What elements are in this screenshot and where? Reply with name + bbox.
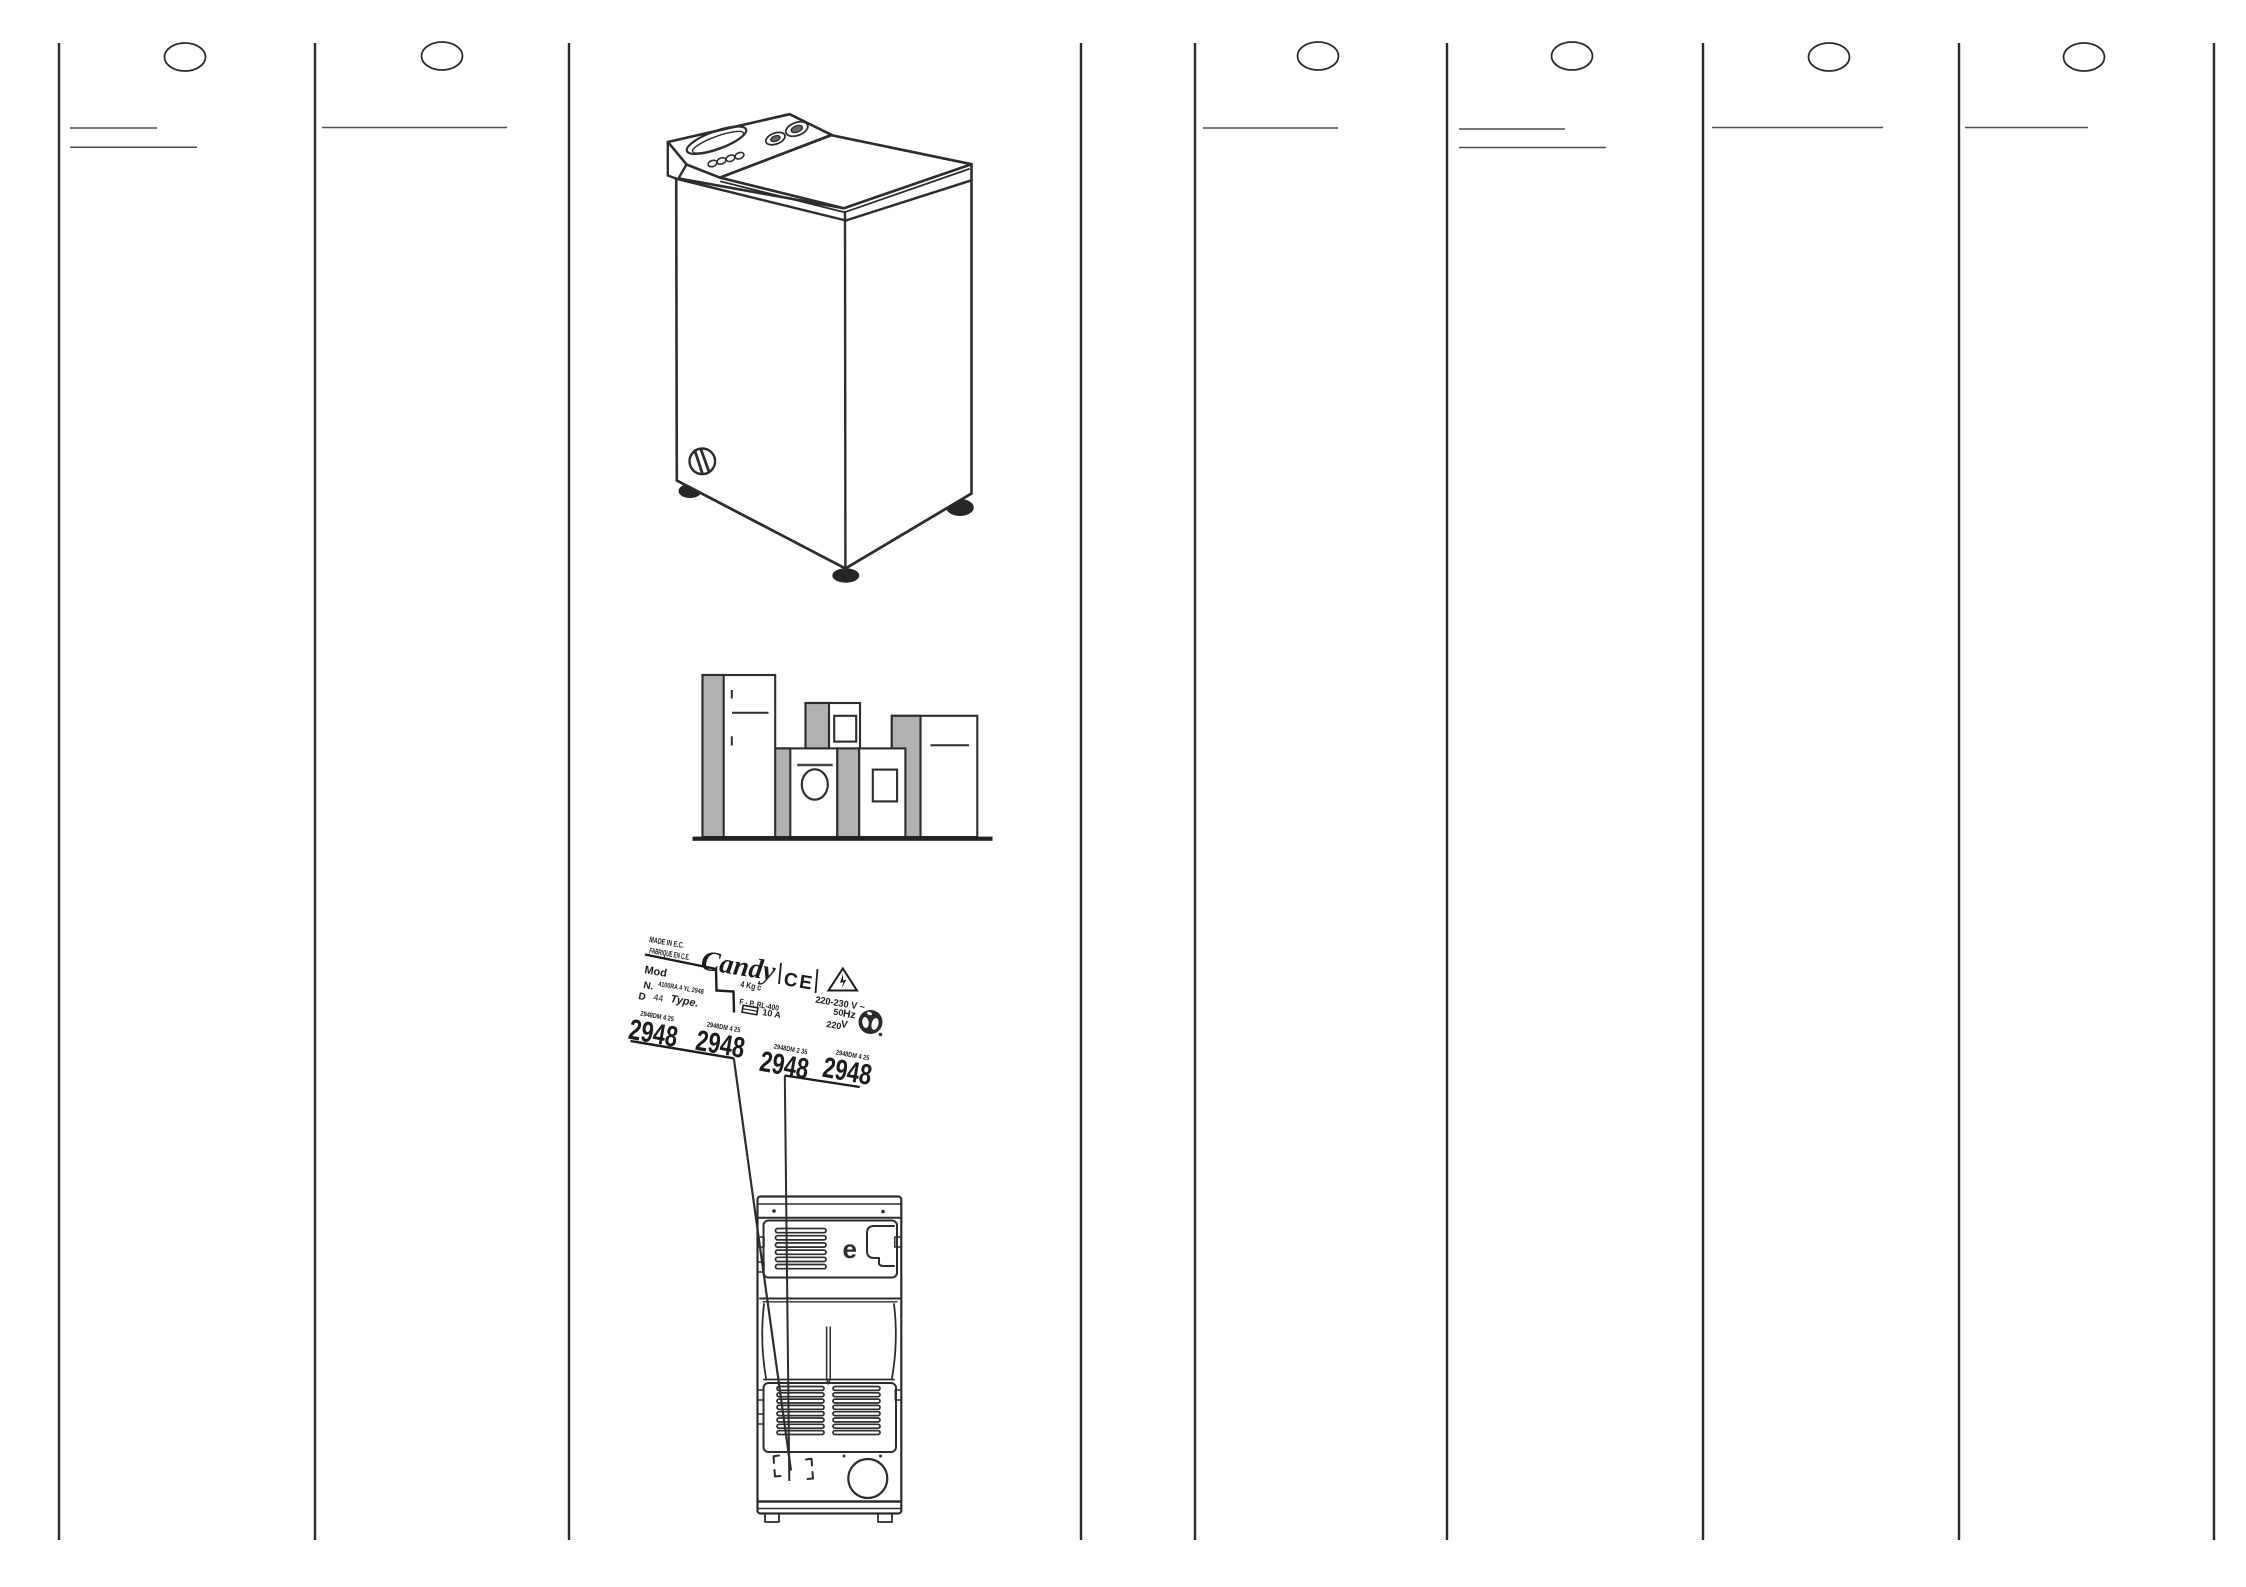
svg-text:e: e xyxy=(843,1234,857,1264)
svg-text:44: 44 xyxy=(653,992,665,1004)
